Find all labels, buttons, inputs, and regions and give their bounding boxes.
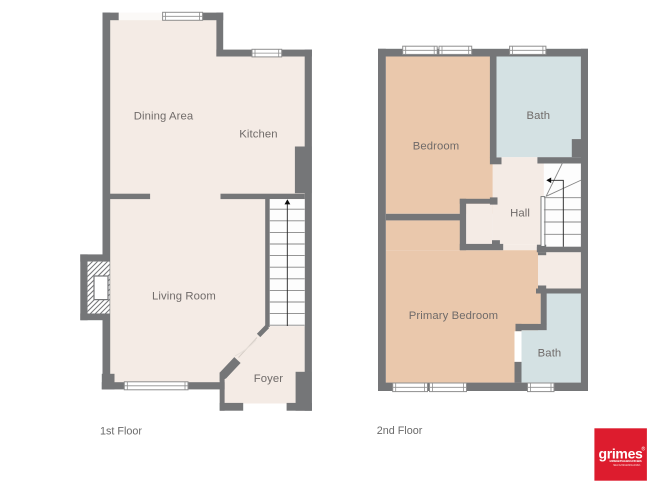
svg-text:Primary Bedroom: Primary Bedroom: [409, 310, 498, 322]
svg-text:Kitchen: Kitchen: [239, 128, 277, 140]
svg-text:ESTATE AGENTS · VALUERS · AUCT: ESTATE AGENTS · VALUERS · AUCTIONEERS: [610, 459, 643, 463]
svg-text:Living Room: Living Room: [152, 291, 216, 303]
svg-text:Hall: Hall: [510, 208, 530, 220]
svg-text:Foyer: Foyer: [254, 373, 284, 385]
svg-text:Bath: Bath: [526, 110, 550, 122]
svg-text:®: ®: [642, 446, 646, 453]
svg-text:Bedroom: Bedroom: [413, 141, 460, 153]
svg-text:SELLING AND LEASING HOMES: SELLING AND LEASING HOMES: [613, 463, 641, 467]
svg-text:2nd Floor: 2nd Floor: [377, 425, 423, 437]
svg-text:1st Floor: 1st Floor: [100, 426, 142, 438]
svg-text:Dining Area: Dining Area: [134, 110, 194, 122]
svg-text:Bath: Bath: [538, 347, 562, 359]
